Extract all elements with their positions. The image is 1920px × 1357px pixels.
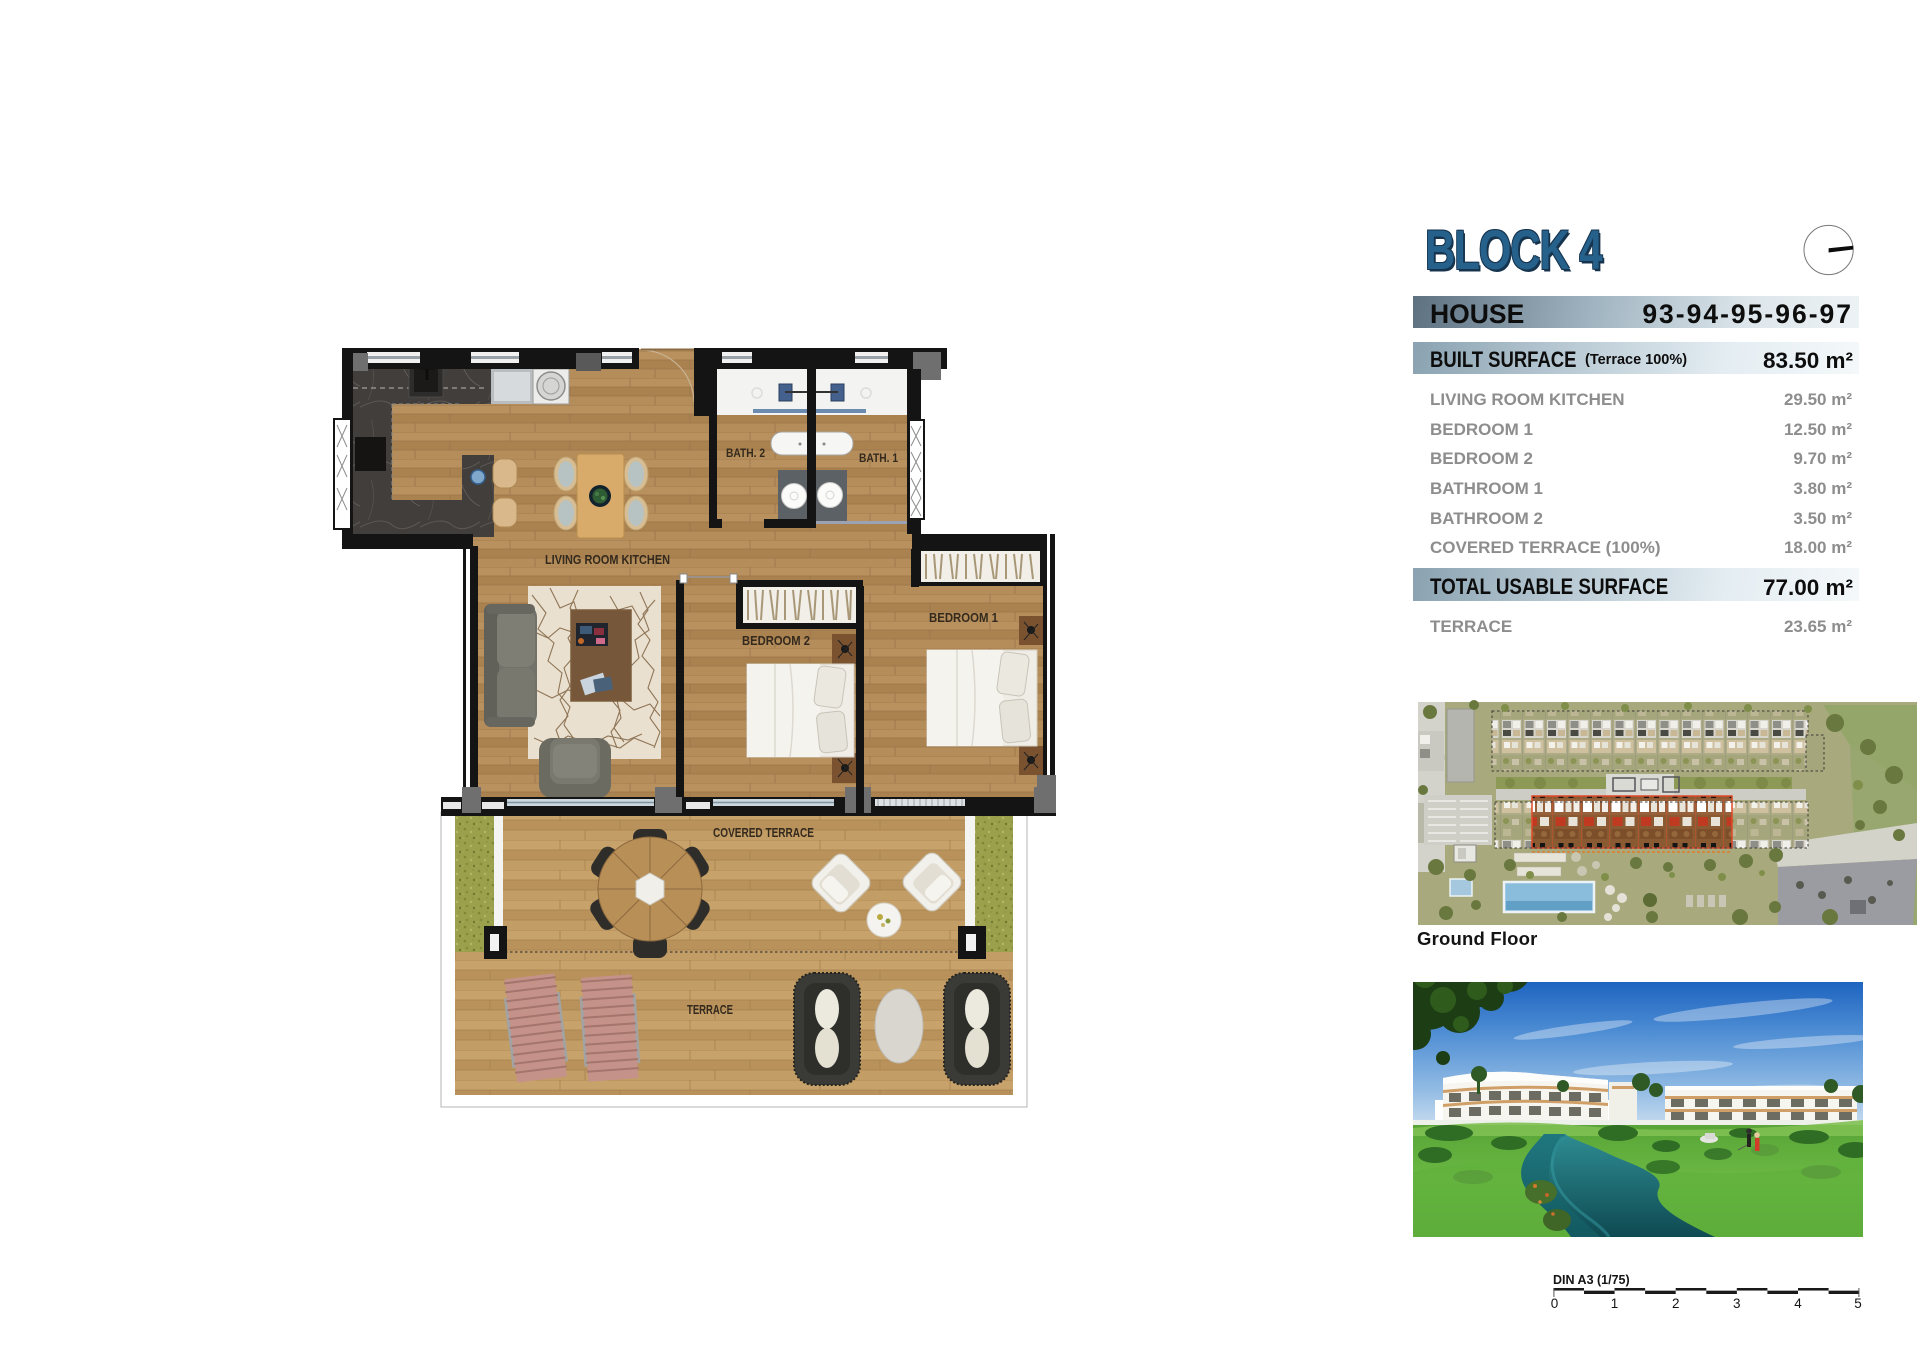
svg-text:BEDROOM 2: BEDROOM 2 xyxy=(742,634,810,648)
svg-text:COVERED TERRACE: COVERED TERRACE xyxy=(713,826,814,840)
svg-text:BATH. 2: BATH. 2 xyxy=(726,446,765,460)
svg-text:BEDROOM 1: BEDROOM 1 xyxy=(929,611,998,625)
svg-text:BATH. 1: BATH. 1 xyxy=(859,451,898,465)
svg-text:LIVING ROOM KITCHEN: LIVING ROOM KITCHEN xyxy=(545,553,670,567)
svg-text:TERRACE: TERRACE xyxy=(687,1003,733,1017)
